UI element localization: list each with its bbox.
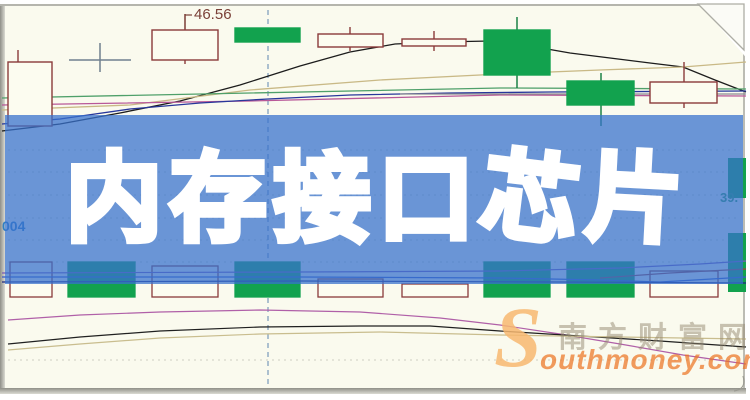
candle-hollow (318, 34, 383, 47)
volume-bar-hollow (402, 284, 468, 297)
banner-char: 内 (66, 152, 162, 248)
candle-hollow (152, 30, 218, 60)
promo-image: 46.5600439. 内存接口芯片 S 南方财富网 outhmoney.com (0, 0, 750, 400)
banner-char: 片 (584, 149, 685, 250)
banner-char: 口 (378, 152, 474, 248)
bottom-corner-curl (734, 376, 744, 391)
candle-green (484, 30, 550, 75)
title-banner: 内存接口芯片 (5, 115, 743, 284)
price-label: 46.56 (194, 6, 232, 23)
page-curl (690, 0, 750, 64)
candle-green (567, 81, 634, 105)
candle-hollow (402, 39, 466, 46)
candle-hollow (650, 82, 717, 103)
ind-black (8, 326, 746, 347)
page-curl-flap (698, 4, 744, 50)
candle-green (235, 28, 300, 42)
banner-char: 接 (274, 152, 370, 248)
banner-char: 芯 (477, 146, 584, 253)
banner-title: 内存接口芯片 (62, 152, 686, 248)
ind-tan (8, 332, 746, 350)
banner-char: 存 (170, 152, 266, 248)
